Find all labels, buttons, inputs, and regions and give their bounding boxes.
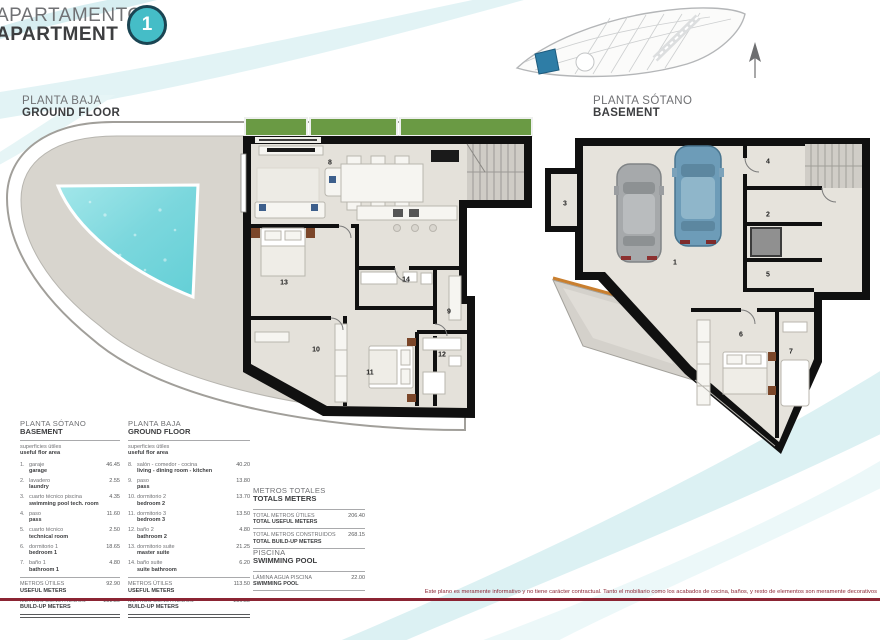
row-label-en: technical room	[29, 534, 106, 540]
totals-panel: METROS TOTALES TOTALS METERS TOTAL METRO…	[253, 487, 365, 549]
row-label-es: TOTAL METROS CONSTRUIDOS	[253, 532, 345, 538]
table-row: TOTAL METROS CONSTRUIDOSTOTAL BUILD-UP M…	[253, 529, 365, 549]
basement-room-numbers: 1234567	[545, 130, 880, 460]
table-row: 3.cuarto técnico piscinaswimming pool te…	[20, 494, 120, 507]
row-value: 206.40	[348, 513, 365, 519]
table-row: 14.baño suitesuite bathroom6.20	[128, 560, 250, 573]
table-end-rule	[128, 614, 250, 618]
row-value: 46.45	[106, 462, 120, 468]
row-value: 13.70	[236, 494, 250, 500]
totals-title-en: TOTALS METERS	[253, 495, 365, 503]
table-end-rule	[20, 614, 120, 618]
row-value: 268.15	[348, 532, 365, 538]
row-number: 4.	[20, 511, 29, 517]
row-number: 3.	[20, 494, 29, 500]
room-number-8: 8	[328, 160, 332, 167]
ground-table-totals: METROS ÚTILESUSEFUL METERS113.50METROS C…	[128, 577, 250, 611]
ground-table-title-en: GROUND FLOOR	[128, 428, 250, 436]
row-label-en: bedroom 1	[29, 550, 103, 556]
footer-accent-line	[0, 598, 880, 601]
row-number: 9.	[128, 478, 137, 484]
basement-title-es: PLANTA SÓTANO	[593, 95, 692, 107]
ground-floor-title: PLANTA BAJA GROUND FLOOR	[22, 95, 120, 119]
ground-floor-plan: 891011121314	[5, 110, 540, 440]
row-number: 2.	[20, 478, 29, 484]
room-number-9: 9	[447, 309, 451, 316]
table-row: 1.garajegarage46.45	[20, 462, 120, 475]
ground-floor-title-en: GROUND FLOOR	[22, 107, 120, 119]
table-row: 6.dormitorio 1bedroom 118.65	[20, 544, 120, 557]
unit-number-badge: 1	[127, 5, 167, 45]
row-label-en: bedroom 3	[137, 517, 233, 523]
row-value: 2.55	[109, 478, 120, 484]
row-label-en: laundry	[29, 484, 106, 490]
pool-panel: PISCINA SWIMMING POOL LÁMINA AGUA PISCIN…	[253, 549, 365, 591]
row-value: 113.50	[234, 581, 250, 587]
table-row: 5.cuarto técnicotechnical room2.50	[20, 527, 120, 540]
row-label-en: garage	[29, 468, 103, 474]
row-value: 11.60	[107, 511, 120, 517]
sheet-header: APARTAMENTO APARTMENT	[0, 6, 143, 45]
row-label-en: TOTAL BUILD-UP METERS	[253, 539, 345, 545]
basement-table-totals: METROS ÚTILESUSEFUL METERS92.90METROS CO…	[20, 577, 120, 611]
row-label-en: BUILD-UP METERS	[20, 604, 100, 610]
row-number: 12.	[128, 527, 137, 533]
row-number: 10.	[128, 494, 137, 500]
row-label-en: bathroom 2	[137, 534, 236, 540]
ground-table-subtitle: superficies útiles useful flor area	[128, 444, 250, 457]
room-number-4: 4	[766, 159, 770, 166]
unit-number: 1	[142, 14, 153, 36]
room-number-2: 2	[766, 212, 770, 219]
table-row: 9.pasopass13.80	[128, 478, 250, 491]
row-number: 1.	[20, 462, 29, 468]
row-number: 5.	[20, 527, 29, 533]
row-label-en: USEFUL METERS	[20, 588, 103, 594]
ground-floor-title-es: PLANTA BAJA	[22, 95, 120, 107]
disclaimer-text: Este plano es meramente informativo y no…	[425, 589, 877, 595]
row-value: 13.50	[236, 511, 250, 517]
row-label-en: master suite	[137, 550, 233, 556]
totals-panel-title: METROS TOTALES TOTALS METERS	[253, 487, 365, 504]
room-number-11: 11	[366, 370, 373, 377]
table-row: 12.baño 2bathroom 24.80	[128, 527, 250, 540]
subtitle-en: useful flor area	[20, 450, 120, 456]
row-value: 18.65	[106, 544, 120, 550]
row-label-en: BUILD-UP METERS	[128, 604, 230, 610]
row-number: 14.	[128, 560, 137, 566]
pool-panel-rows: LÁMINA AGUA PISCINASWIMMING POOL22.00	[253, 571, 365, 592]
basement-area-table: PLANTA SÓTANO BASEMENT superficies útile…	[20, 420, 120, 618]
room-number-10: 10	[312, 347, 320, 354]
basement-table-title: PLANTA SÓTANO BASEMENT	[20, 420, 120, 437]
highlighted-unit	[535, 49, 559, 74]
table-row: 10.dormitorio 2bedroom 213.70	[128, 494, 250, 507]
floor-plan-sheet: APARTAMENTO APARTMENT 1 PLANTA BAJA GROU…	[0, 0, 880, 640]
row-number: 11.	[128, 511, 137, 517]
apartment-title-es: APARTAMENTO	[0, 6, 143, 25]
room-number-5: 5	[766, 272, 770, 279]
table-row: 11.dormitorio 3bedroom 313.50	[128, 511, 250, 524]
row-number: 6.	[20, 544, 29, 550]
row-value: 92.90	[106, 581, 120, 587]
row-label-en: suite bathroom	[137, 567, 236, 573]
subtitle-en: useful flor area	[128, 450, 250, 456]
room-number-1: 1	[673, 260, 677, 267]
table-row: METROS ÚTILESUSEFUL METERS92.90	[20, 581, 120, 594]
ground-room-numbers: 891011121314	[5, 110, 540, 440]
row-value: 6.20	[239, 560, 250, 566]
row-label-en: pass	[29, 517, 104, 523]
room-number-6: 6	[739, 332, 743, 339]
row-label-en: pass	[137, 484, 233, 490]
row-label-en: bathroom 1	[29, 567, 106, 573]
room-number-3: 3	[563, 201, 567, 208]
basement-plan: 1234567	[545, 130, 880, 460]
pool-panel-title: PISCINA SWIMMING POOL	[253, 549, 365, 566]
row-label-en: USEFUL METERS	[128, 588, 231, 594]
row-value: 22.00	[351, 575, 365, 581]
basement-title: PLANTA SÓTANO BASEMENT	[593, 95, 692, 119]
row-value: 4.80	[109, 560, 120, 566]
row-label-en: TOTAL USEFUL METERS	[253, 519, 345, 525]
ground-table-rows: 8.salón - comedor - cocinaliving - dinin…	[128, 462, 250, 574]
ground-table-title: PLANTA BAJA GROUND FLOOR	[128, 420, 250, 437]
row-value: 21.25	[236, 544, 250, 550]
row-label-en: SWIMMING POOL	[253, 581, 348, 587]
row-value: 13.80	[236, 478, 250, 484]
basement-title-en: BASEMENT	[593, 107, 692, 119]
site-locator-plan	[505, 4, 770, 96]
pool-title-en: SWIMMING POOL	[253, 557, 365, 565]
basement-table-subtitle: superficies útiles useful flor area	[20, 444, 120, 457]
basement-table-title-en: BASEMENT	[20, 428, 120, 436]
room-number-12: 12	[438, 352, 446, 359]
room-number-14: 14	[402, 277, 410, 284]
table-row: METROS ÚTILESUSEFUL METERS113.50	[128, 581, 250, 594]
compass-icon	[749, 42, 761, 78]
room-number-7: 7	[789, 349, 793, 356]
table-row: LÁMINA AGUA PISCINASWIMMING POOL22.00	[253, 571, 365, 592]
row-number: 8.	[128, 462, 137, 468]
totals-panel-rows: TOTAL METROS ÚTILESTOTAL USEFUL METERS20…	[253, 509, 365, 550]
table-row: 8.salón - comedor - cocinaliving - dinin…	[128, 462, 250, 475]
site-roundabout	[576, 53, 594, 71]
basement-table-rows: 1.garajegarage46.452.lavaderolaundry2.55…	[20, 462, 120, 574]
row-label-en: living - dining room - kitchen	[137, 468, 233, 474]
apartment-title-en: APARTMENT	[0, 25, 143, 44]
row-value: 4.80	[239, 527, 250, 533]
row-value: 40.20	[236, 462, 250, 468]
row-value: 4.35	[109, 494, 120, 500]
table-row: TOTAL METROS ÚTILESTOTAL USEFUL METERS20…	[253, 509, 365, 530]
row-value: 2.50	[109, 527, 120, 533]
table-row: 7.baño 1bathroom 14.80	[20, 560, 120, 573]
row-label-en: bedroom 2	[137, 501, 233, 507]
row-label-en: swimming pool tech. room	[29, 501, 106, 507]
row-number: 7.	[20, 560, 29, 566]
table-row: 13.dormitorio suitemaster suite21.25	[128, 544, 250, 557]
table-row: 2.lavaderolaundry2.55	[20, 478, 120, 491]
row-number: 13.	[128, 544, 137, 550]
ground-area-table: PLANTA BAJA GROUND FLOOR superficies úti…	[128, 420, 250, 618]
room-number-13: 13	[280, 280, 288, 287]
table-row: 4.pasopass11.60	[20, 511, 120, 524]
